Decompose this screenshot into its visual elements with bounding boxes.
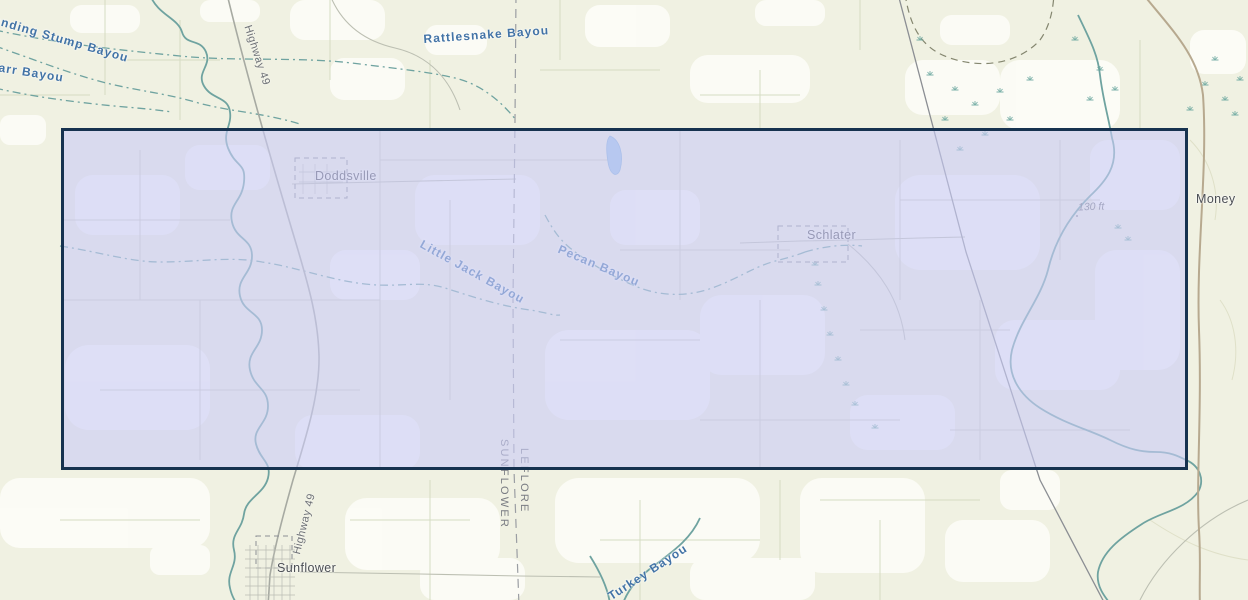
map-canvas[interactable]: Standing Stump Bayou Darr Bayou Rattlesn… — [0, 0, 1248, 600]
selection-rectangle[interactable] — [61, 128, 1188, 470]
